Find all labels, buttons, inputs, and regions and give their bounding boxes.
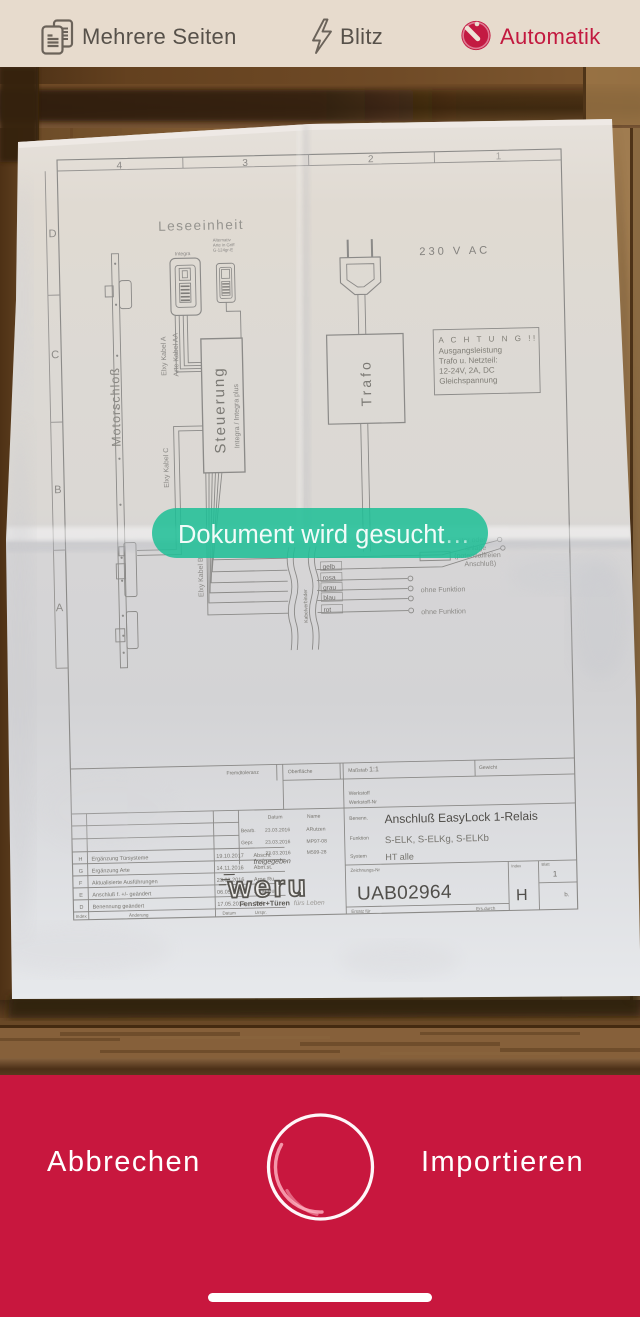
svg-text:Name: Name — [307, 814, 321, 820]
svg-text:Steuerung: Steuerung — [211, 366, 230, 454]
svg-text:Datum: Datum — [222, 910, 236, 915]
svg-text:B: B — [54, 484, 62, 496]
svg-text:Trafo u. Netzteil:: Trafo u. Netzteil: — [439, 355, 498, 365]
svg-text:S-ELK, S-ELKg, S-ELKb: S-ELK, S-ELKg, S-ELKb — [385, 833, 489, 846]
svg-text:Leseeinheit: Leseeinheit — [158, 217, 244, 234]
svg-text:Bearb.: Bearb. — [241, 828, 256, 834]
svg-text:Oberfläche: Oberfläche — [288, 769, 313, 776]
svg-text:Integra / Integra plus: Integra / Integra plus — [233, 383, 241, 448]
svg-text:H: H — [78, 857, 82, 863]
svg-text:1: 1 — [496, 151, 502, 162]
svg-text:1: 1 — [553, 869, 558, 878]
svg-text:Dokument wird gesucht…: Dokument wird gesucht… — [178, 521, 470, 549]
svg-text:Gleichspannung: Gleichspannung — [439, 376, 497, 386]
svg-text:ohne Funktion: ohne Funktion — [421, 586, 466, 594]
svg-text:Anschluß): Anschluß) — [464, 561, 496, 569]
svg-text:grau: grau — [323, 585, 337, 592]
svg-text:Motorschloß: Motorschloß — [108, 367, 124, 447]
svg-text:Änderung: Änderung — [129, 911, 149, 917]
svg-text:Datum: Datum — [268, 814, 283, 820]
svg-text:Werkstoff-Nr: Werkstoff-Nr — [349, 799, 377, 806]
svg-text:23.03.2016: 23.03.2016 — [265, 839, 290, 846]
svg-text:Blatt: Blatt — [541, 862, 550, 867]
svg-text:Funktion: Funktion — [350, 836, 370, 842]
svg-text:Trafo: Trafo — [357, 359, 374, 406]
svg-text:gelb: gelb — [323, 564, 336, 571]
svg-text:Maßstab 1:1: Maßstab 1:1 — [348, 766, 379, 774]
svg-text:Fremdtoleranz: Fremdtoleranz — [226, 770, 259, 777]
svg-text:3: 3 — [242, 158, 248, 169]
svg-text:Index: Index — [76, 914, 88, 919]
svg-text:System: System — [350, 854, 367, 860]
svg-text:Benennung geändert: Benennung geändert — [93, 903, 145, 910]
svg-text:D: D — [79, 905, 83, 911]
svg-text:C: C — [51, 349, 59, 361]
svg-text:12-24V, 2A, DC: 12-24V, 2A, DC — [439, 366, 495, 376]
svg-text:23.03.2016: 23.03.2016 — [265, 827, 290, 834]
svg-text:rosa: rosa — [323, 575, 336, 582]
svg-text:ARutzen: ARutzen — [306, 826, 326, 832]
svg-text:rot: rot — [323, 607, 331, 614]
svg-text:Elxy Kabel A: Elxy Kabel A — [161, 336, 169, 376]
svg-text:Urspr.: Urspr. — [255, 910, 267, 915]
svg-text:Gepr.: Gepr. — [241, 840, 253, 846]
svg-text:230 V AC: 230 V AC — [419, 245, 490, 259]
svg-text:Index: Index — [511, 863, 521, 868]
svg-text:Integra: Integra — [175, 251, 191, 257]
svg-text:Elxy Kabel C: Elxy Kabel C — [163, 448, 171, 488]
svg-text:2: 2 — [368, 154, 374, 165]
svg-text:MP97-08: MP97-08 — [306, 838, 327, 844]
svg-text:b.: b. — [564, 892, 569, 898]
svg-text:Fenster+Türen: Fenster+Türen — [239, 898, 290, 908]
svg-text:Abschl.: Abschl. — [253, 853, 272, 859]
svg-text:Ergänzung Arte: Ergänzung Arte — [92, 868, 130, 875]
svg-text:Elxy Kabel B: Elxy Kabel B — [198, 557, 206, 597]
svg-text:fürs Leben: fürs Leben — [294, 900, 325, 908]
svg-text:Gewicht: Gewicht — [479, 765, 498, 771]
svg-text:E: E — [79, 893, 83, 899]
svg-text:A: A — [56, 602, 64, 614]
svg-text:Kabelverbinder: Kabelverbinder — [303, 589, 310, 623]
svg-text:D: D — [48, 228, 56, 240]
svg-text:G: G — [79, 869, 83, 875]
svg-text:Werkstoff: Werkstoff — [349, 790, 371, 796]
svg-text:Zeichnungs-Nr: Zeichnungs-Nr — [350, 867, 380, 873]
svg-text:ohne Funktion: ohne Funktion — [421, 608, 466, 616]
svg-text:Benenn.: Benenn. — [349, 816, 368, 822]
svg-text:UAB02964: UAB02964 — [357, 882, 452, 905]
svg-text:HT alle: HT alle — [385, 852, 414, 863]
svg-text:Arte Kabel AA: Arte Kabel AA — [173, 333, 181, 377]
svg-text:Ers.durch: Ers.durch — [476, 906, 496, 911]
svg-text:Ausgangsleistung: Ausgangsleistung — [439, 345, 503, 355]
svg-text:Ersatz für: Ersatz für — [351, 909, 371, 914]
svg-text:H: H — [516, 886, 528, 904]
svg-text:Ergänzung Türsysteme: Ergänzung Türsysteme — [91, 855, 148, 862]
svg-text:M599-28: M599-28 — [307, 849, 327, 855]
svg-text:blau: blau — [323, 595, 336, 602]
svg-text:G-124gr-E: G-124gr-E — [213, 247, 233, 252]
svg-text:19.10.2017: 19.10.2017 — [216, 853, 244, 860]
svg-text:4: 4 — [116, 161, 122, 172]
